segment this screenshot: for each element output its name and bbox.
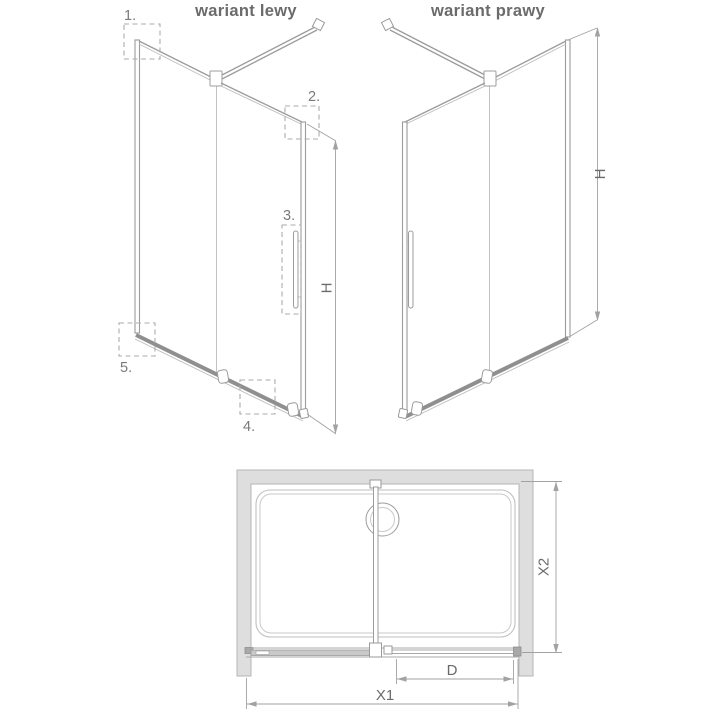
glass-clamp xyxy=(384,646,392,654)
depth-dimension-label: X2 xyxy=(536,558,553,576)
door-top-edge-inner xyxy=(406,86,485,124)
stabilizer-bar-lower xyxy=(390,30,485,79)
bar-glass-bracket xyxy=(370,643,382,657)
bar-wall-anchor xyxy=(381,18,393,30)
dimension-H-right: H xyxy=(568,27,609,337)
left-variant-title: wariant lewy xyxy=(194,2,297,20)
fixed-panel-top-edge-inner xyxy=(139,44,216,83)
left-variant-diagram: wariant lewy 1. 2. xyxy=(119,2,338,435)
height-dimension-label-left: H xyxy=(319,283,336,294)
callout-box-4 xyxy=(240,380,275,414)
dimension-X1: X1 xyxy=(247,659,519,709)
fixed-panel-top-edge xyxy=(490,41,566,80)
roller-guide xyxy=(287,402,299,417)
callout-label-1: 1. xyxy=(124,8,136,24)
roller-carriage-plan xyxy=(256,651,269,655)
fixed-panel-top-edge xyxy=(139,41,217,80)
total-width-dimension-label: X1 xyxy=(376,687,394,704)
roller-guide xyxy=(481,369,493,384)
door-bottom-cap xyxy=(299,408,309,418)
stabilizer-bar-lower xyxy=(222,30,317,79)
door-handle xyxy=(294,231,299,308)
right-variant-diagram: wariant prawy H xyxy=(381,2,609,421)
track-right-bracket xyxy=(514,647,522,656)
left-wall-profile xyxy=(135,40,140,333)
door-edge-profile xyxy=(403,122,408,413)
shower-enclosure-diagram: wariant lewy 1. 2. xyxy=(0,0,720,720)
bar-wall-anchor xyxy=(312,18,324,30)
callout-label-2: 2. xyxy=(308,89,320,105)
callout-label-5: 5. xyxy=(120,360,132,376)
door-handle xyxy=(409,231,414,308)
callout-box-1 xyxy=(124,24,160,59)
door-top-edge xyxy=(405,83,485,122)
door-bottom-cap xyxy=(398,408,408,418)
dimension-D: D xyxy=(397,659,514,684)
right-variant-title: wariant prawy xyxy=(430,2,545,20)
fixed-panel-top-edge-inner xyxy=(491,44,566,83)
door-top-edge xyxy=(221,83,302,122)
dimension-H-left: H xyxy=(307,124,338,434)
plan-view: X2 D X1 xyxy=(237,470,562,709)
stabilizer-bar xyxy=(390,26,485,75)
height-dimension-label-right: H xyxy=(592,169,609,180)
stabilizer-bar-plan xyxy=(374,487,379,646)
roller-guide xyxy=(411,401,423,416)
right-wall-profile xyxy=(566,40,571,337)
door-top-edge-inner xyxy=(221,86,301,124)
diagram-page: wariant lewy 1. 2. xyxy=(0,0,720,720)
stabilizer-bar xyxy=(222,26,317,75)
bar-panel-connector xyxy=(484,71,496,86)
callout-label-4: 4. xyxy=(243,419,255,435)
roller-guide xyxy=(217,369,229,384)
callout-label-3: 3. xyxy=(283,208,295,224)
door-width-dimension-label: D xyxy=(447,662,458,679)
bar-panel-connector xyxy=(210,71,222,86)
door-edge-profile xyxy=(301,122,306,413)
